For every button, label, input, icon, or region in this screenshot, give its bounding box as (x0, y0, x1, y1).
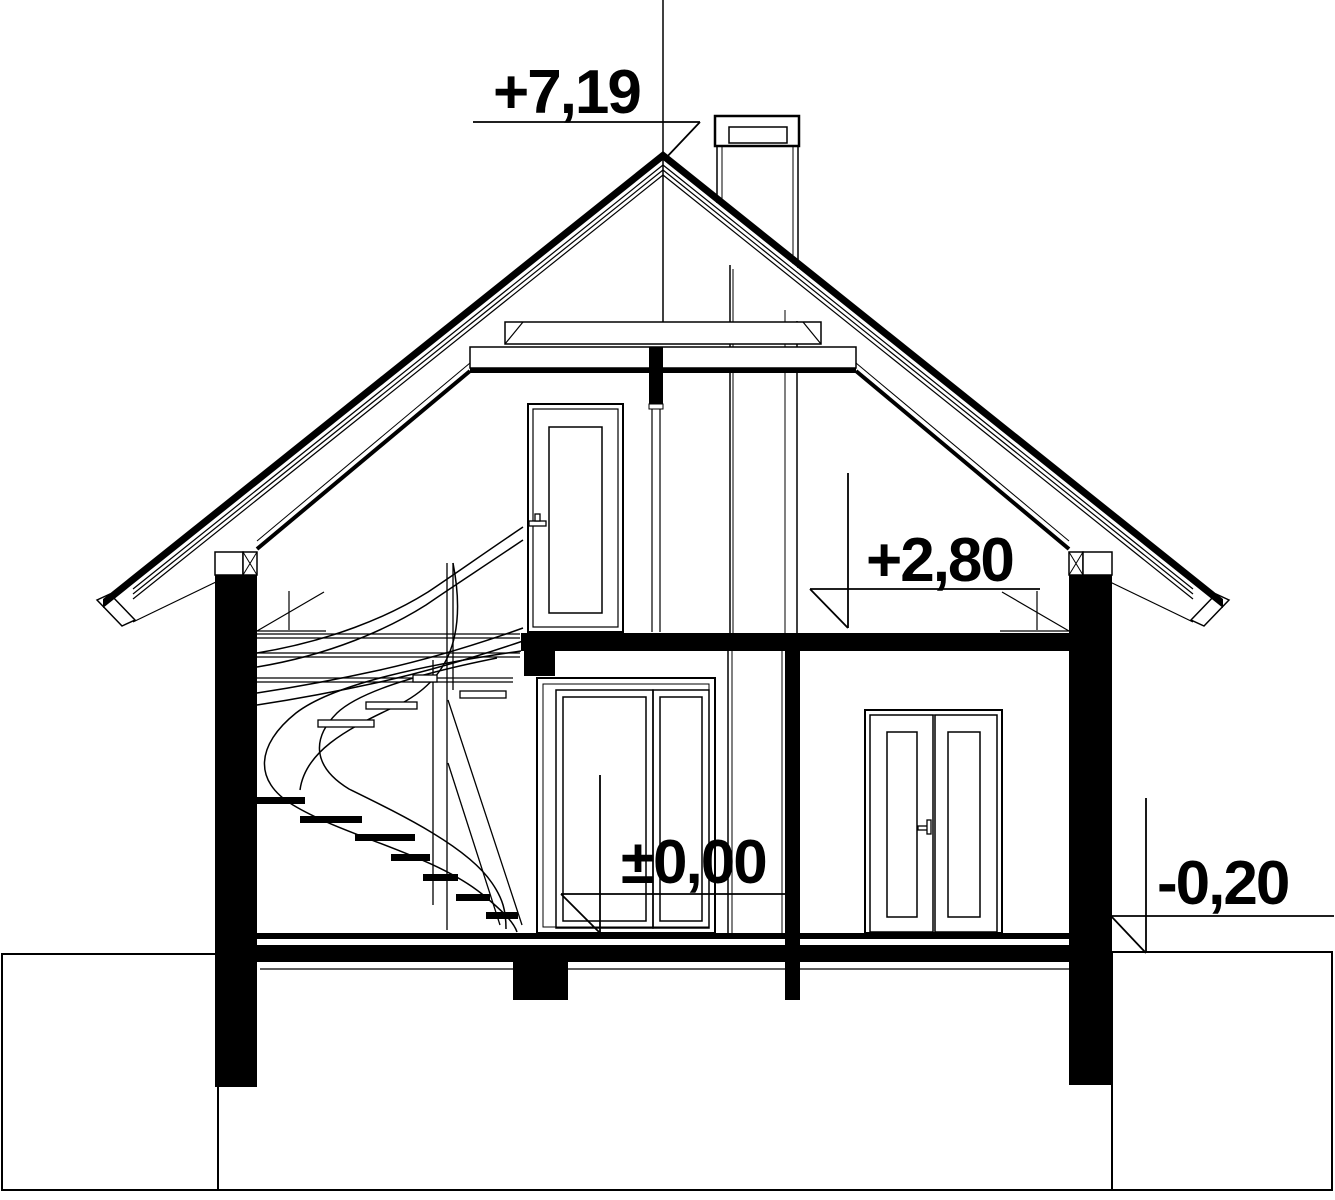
section-linework (0, 0, 1335, 1200)
terrain-block-right (1112, 952, 1332, 1190)
exterior-wall-right (1069, 575, 1112, 1085)
double-door (865, 710, 1002, 933)
level-label-ridge: +7,19 (493, 62, 640, 124)
attic-door (528, 404, 623, 632)
stair-landing-lines (257, 634, 520, 682)
level-label-ground: ±0,00 (621, 832, 766, 894)
ground-floor-slab (218, 933, 1112, 1000)
terrain (2, 952, 1332, 1190)
foundation-pier (513, 962, 568, 1000)
attic-door-handle-icon (529, 514, 546, 526)
level-label-floor1: +2,80 (866, 530, 1013, 592)
wall-plate-right (1069, 552, 1112, 575)
stair-steps-upper (318, 675, 506, 727)
terrain-block-left (2, 954, 218, 1190)
wall-plate-left (215, 552, 257, 575)
attic-knee-brace-right (1000, 591, 1069, 631)
exterior-wall-left (215, 575, 257, 1087)
architectural-section-drawing: +7,19 +2,80 ±0,00 -0,20 (0, 0, 1335, 1200)
level-label-terrain: -0,20 (1157, 853, 1288, 915)
staircase (257, 527, 523, 932)
roof-left-slope (97, 151, 663, 626)
attic-knee-brace-left (257, 591, 326, 631)
attic-partition-cut (649, 347, 663, 632)
